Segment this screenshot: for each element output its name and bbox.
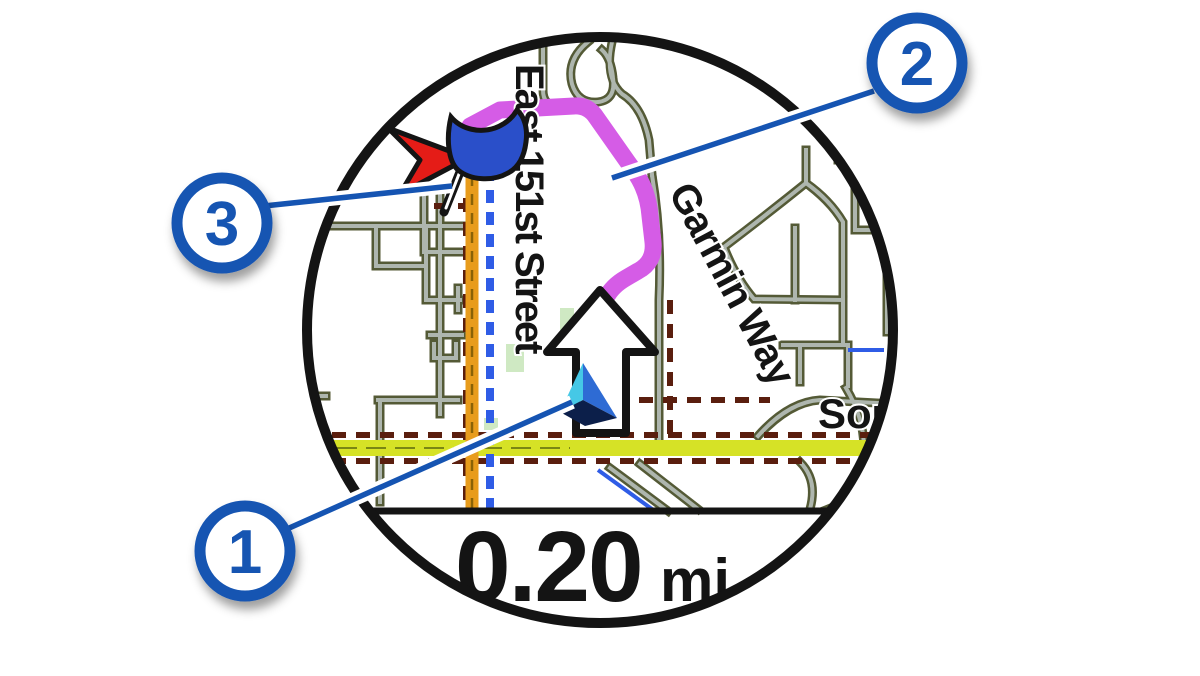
watch-map-diagram: East 151st Street Garmin Way Sout 0.20 m… xyxy=(0,0,1200,676)
street-label-south: Sout xyxy=(818,390,911,437)
callout-3-number: 3 xyxy=(205,190,239,259)
callout-1: 1 xyxy=(200,506,290,596)
figure-canvas: East 151st Street Garmin Way Sout 0.20 m… xyxy=(0,0,1200,676)
callout-2: 2 xyxy=(872,18,962,108)
callout-2-number: 2 xyxy=(900,30,934,99)
callout-1-number: 1 xyxy=(228,518,262,587)
callout-3: 3 xyxy=(177,178,267,268)
scale-value: 0.20 xyxy=(455,511,642,623)
street-label-east-151st: East 151st Street xyxy=(507,64,551,354)
